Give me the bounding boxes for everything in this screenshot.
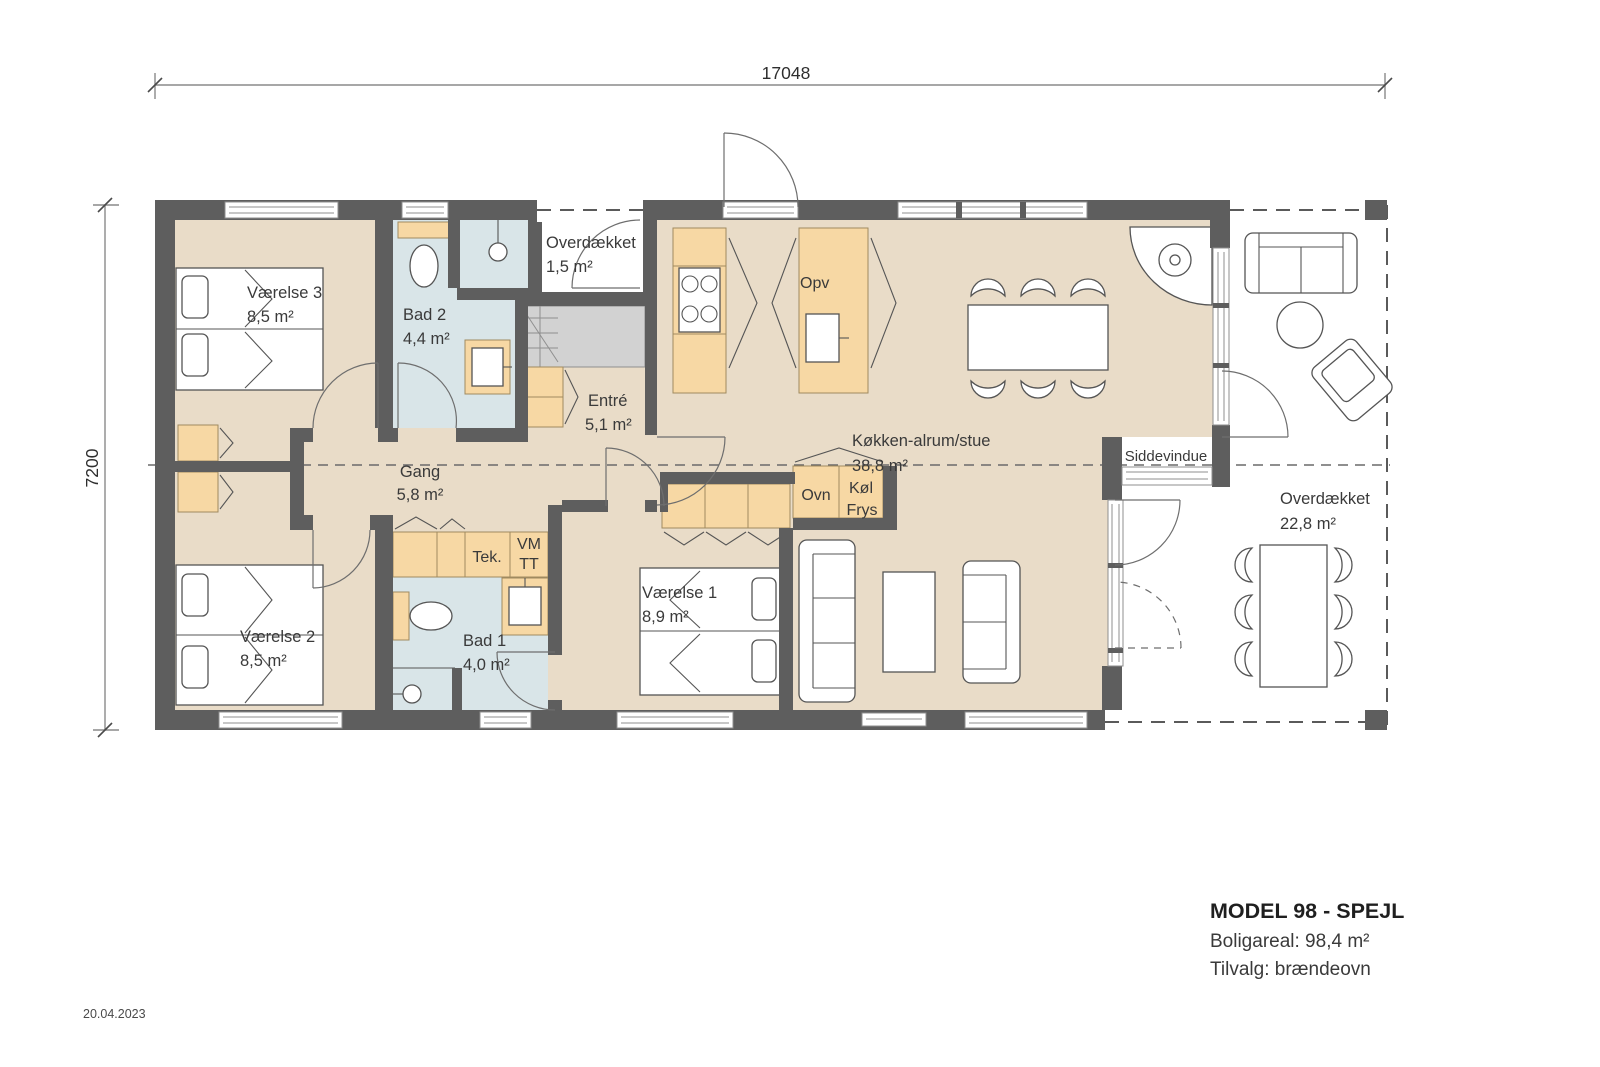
front-door-opening bbox=[723, 202, 798, 218]
label-koel: Køl bbox=[849, 480, 873, 497]
label-koekken-area: 38,8 m² bbox=[852, 457, 908, 475]
wardrobe-v2 bbox=[178, 472, 218, 512]
model-title: MODEL 98 - SPEJL bbox=[1210, 899, 1404, 923]
label-bad2-area: 4,4 m² bbox=[403, 330, 450, 348]
label-frys: Frys bbox=[846, 502, 877, 519]
toilet bbox=[410, 245, 438, 287]
floor-plan-page: 17048 7200 Værelse 3 8,5 m² Bad 2 4,4 m²… bbox=[0, 0, 1600, 1067]
shower-head bbox=[489, 243, 507, 261]
bay-window bbox=[1122, 467, 1212, 485]
coffee-table bbox=[883, 572, 935, 672]
living-area-line: Boligareal: 98,4 m² bbox=[1210, 931, 1369, 952]
label-tt: TT bbox=[519, 556, 539, 573]
label-bad1-area: 4,0 m² bbox=[463, 656, 510, 674]
sink bbox=[509, 587, 541, 625]
drawing-date: 20.04.2023 bbox=[83, 1007, 146, 1021]
label-vaerelse1-area: 8,9 m² bbox=[642, 608, 689, 626]
label-entre: Entré bbox=[588, 392, 627, 410]
label-overdaekket-entry: Overdækket bbox=[546, 234, 636, 252]
window-living-bottom-small bbox=[862, 713, 926, 726]
floor-plan-drawing: 17048 7200 Værelse 3 8,5 m² Bad 2 4,4 m²… bbox=[0, 0, 1600, 1067]
label-overdaekket-terrace-area: 22,8 m² bbox=[1280, 515, 1336, 533]
dimension-width: 17048 bbox=[762, 63, 811, 83]
window-living-top bbox=[898, 202, 1087, 218]
label-vaerelse2-area: 8,5 m² bbox=[240, 652, 287, 670]
label-siddevindue: Siddevindue bbox=[1125, 448, 1208, 465]
label-vaerelse3-area: 8,5 m² bbox=[247, 308, 294, 326]
terrace-round-table bbox=[1277, 302, 1323, 348]
window-v2 bbox=[219, 712, 342, 728]
glass-doors-right bbox=[1108, 500, 1123, 666]
terrace-lounge bbox=[1245, 233, 1395, 424]
front-door bbox=[724, 133, 798, 207]
label-gang: Gang bbox=[400, 463, 440, 481]
option-line: Tilvalg: brændeovn bbox=[1210, 959, 1371, 980]
window-v1 bbox=[617, 712, 733, 728]
door-terrace-upper bbox=[1222, 371, 1288, 437]
label-tek: Tek. bbox=[472, 549, 501, 566]
toilet-cistern bbox=[398, 222, 450, 238]
terrace-dining bbox=[1235, 545, 1352, 687]
label-bad1: Bad 1 bbox=[463, 632, 506, 650]
shower-head bbox=[403, 685, 421, 703]
label-opv: Opv bbox=[800, 275, 829, 292]
label-vaerelse3: Værelse 3 bbox=[247, 284, 322, 302]
toilet-cistern bbox=[393, 592, 409, 640]
sink bbox=[472, 348, 503, 386]
label-overdaekket-entry-area: 1,5 m² bbox=[546, 258, 593, 276]
label-overdaekket-terrace: Overdækket bbox=[1280, 490, 1370, 508]
label-vaerelse1: Værelse 1 bbox=[642, 584, 717, 602]
window-bad1 bbox=[480, 712, 531, 728]
label-vaerelse2: Værelse 2 bbox=[240, 628, 315, 646]
toilet bbox=[410, 602, 452, 630]
window-living-bottom bbox=[965, 712, 1087, 728]
window-living-right bbox=[1213, 248, 1229, 425]
bad2-floor bbox=[393, 220, 528, 428]
wardrobe-v1 bbox=[662, 484, 790, 528]
terrace-lounge-chair bbox=[1309, 336, 1396, 424]
label-vm: VM bbox=[517, 536, 541, 553]
door-terrace-right-dashed bbox=[1115, 582, 1181, 648]
sofa-left bbox=[799, 540, 855, 702]
door-terrace-right bbox=[1115, 500, 1180, 565]
label-bad2: Bad 2 bbox=[403, 306, 446, 324]
label-koekken: Køkken-alrum/stue bbox=[852, 432, 990, 450]
island-sink bbox=[806, 314, 839, 362]
label-entre-area: 5,1 m² bbox=[585, 416, 632, 434]
dimension-depth: 7200 bbox=[82, 448, 102, 487]
label-gang-area: 5,8 m² bbox=[397, 486, 444, 504]
window-bad2 bbox=[402, 202, 448, 218]
wardrobe-v3 bbox=[178, 425, 218, 461]
window-v3 bbox=[225, 202, 338, 218]
label-ovn: Ovn bbox=[801, 487, 830, 504]
sofa-right bbox=[963, 561, 1020, 683]
title-block: MODEL 98 - SPEJL Boligareal: 98,4 m² Til… bbox=[1210, 899, 1404, 980]
